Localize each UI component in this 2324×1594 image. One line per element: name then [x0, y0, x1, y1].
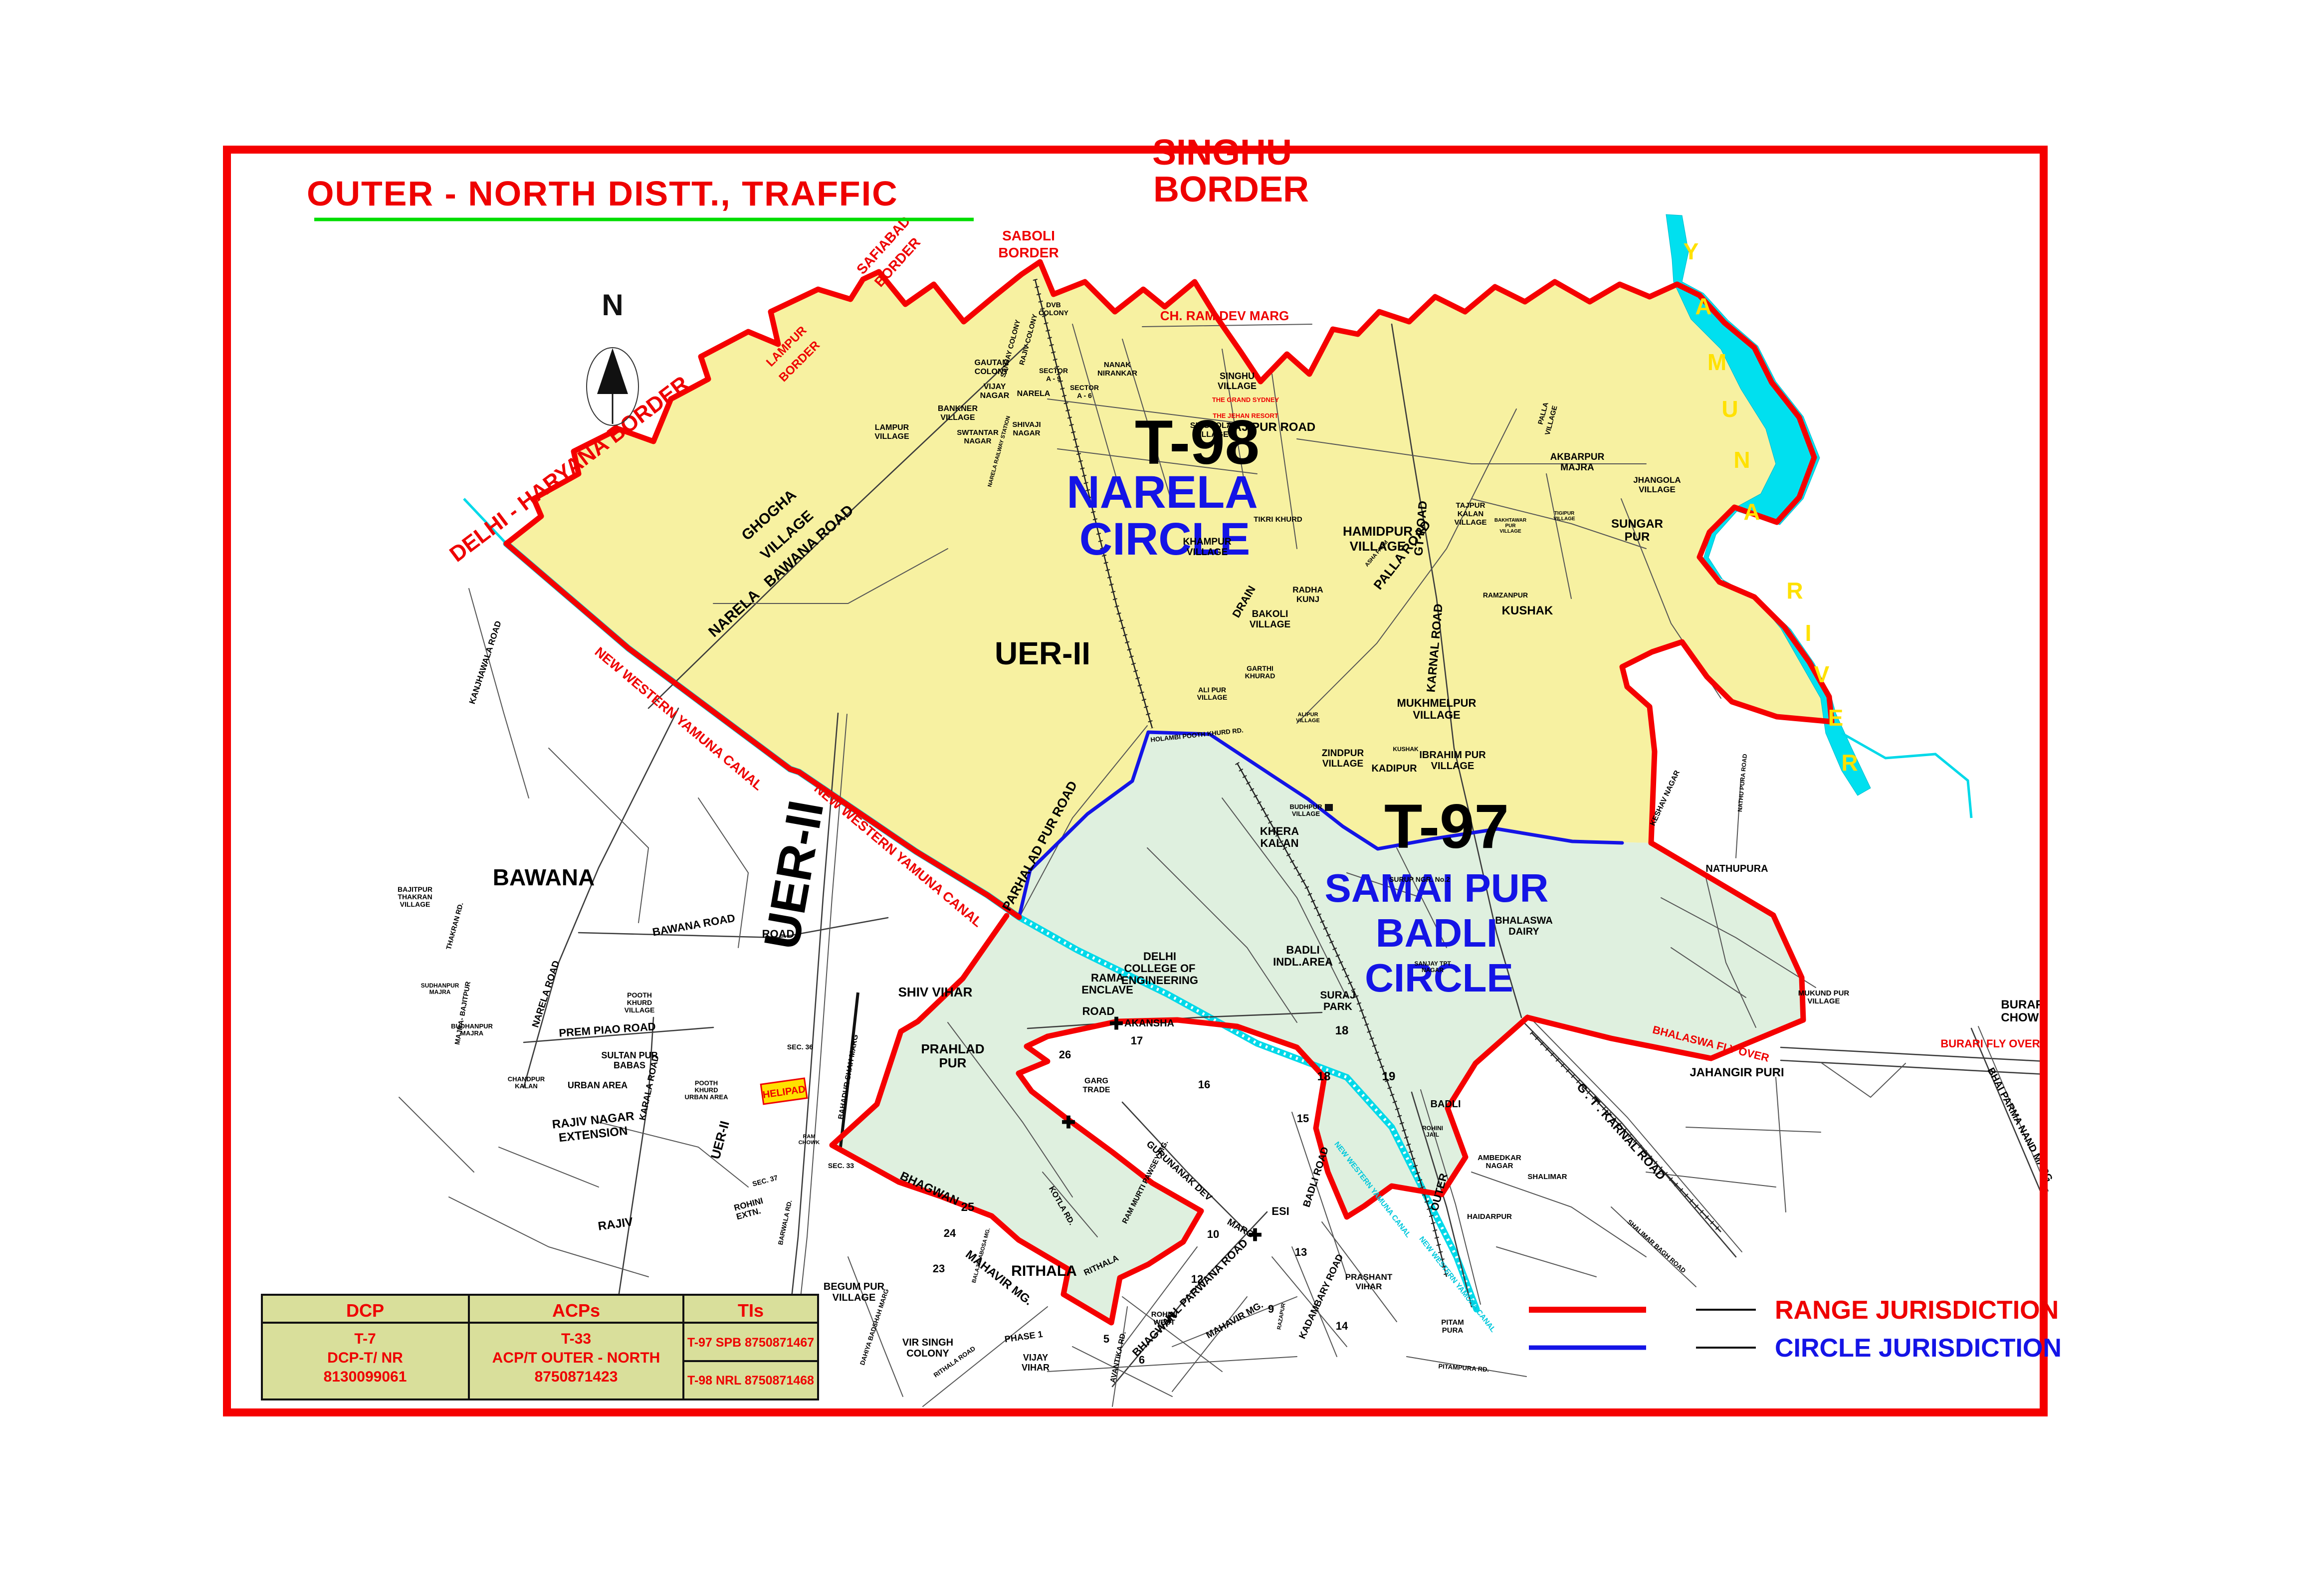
- map-label: MAJRA: [460, 1029, 484, 1037]
- map-label: VIJAY: [1023, 1353, 1048, 1363]
- district-traffic-map: HELIPAD SINGHUBORDERSAFIABADBORDERSABOLI…: [0, 0, 2324, 1594]
- map-label: Y: [1684, 238, 1699, 264]
- map-label: VIJAY: [984, 383, 1006, 391]
- map-label: DELHI: [1143, 950, 1176, 963]
- map-label: 18: [1317, 1070, 1331, 1083]
- map-label: BABAS: [614, 1060, 645, 1070]
- map-label: I: [1805, 620, 1812, 646]
- map-label: KUSHAK: [1393, 746, 1419, 753]
- map-label: TIKRI KHURD: [1254, 515, 1302, 524]
- map-label: POOTH: [627, 991, 652, 999]
- map-label: HAIDARPUR: [1467, 1212, 1512, 1221]
- map-label: 16: [1198, 1078, 1210, 1091]
- map-label: AMBEDKAR: [1478, 1154, 1521, 1162]
- map-label: RAMA: [1091, 972, 1124, 984]
- map-label: PITAM: [1441, 1318, 1464, 1327]
- table-acps-line1: T-33: [561, 1331, 591, 1347]
- map-label: RAMZANPUR: [1483, 591, 1528, 599]
- map-label: SHIVAJI: [1012, 420, 1041, 429]
- map-label: VILLAGE: [1553, 516, 1575, 522]
- map-label: A: [1743, 499, 1760, 525]
- map-label: NAGAR: [964, 437, 992, 445]
- map-label: ESI: [1271, 1205, 1289, 1217]
- map-label: A - 6: [1077, 392, 1092, 399]
- map-label: NANAK: [1104, 361, 1131, 369]
- map-label: 12: [1191, 1273, 1203, 1285]
- map-label: SWTANTAR: [957, 428, 999, 437]
- map-label: R: [1786, 578, 1803, 603]
- legend-circle-label: CIRCLE JURISDICTION: [1775, 1334, 2062, 1363]
- map-label: NIRANKAR: [1097, 369, 1137, 378]
- map-label: KHURAD: [1245, 672, 1275, 680]
- map-label: VILLAGE: [400, 900, 430, 908]
- map-label: SURUP NGR. No.2: [1389, 875, 1450, 883]
- map-label: COLONY: [1039, 309, 1069, 317]
- map-label: BAWANA: [493, 864, 595, 890]
- map-label: BAKHTAWAR: [1494, 518, 1527, 523]
- legend-range-label: RANGE JURISDICTION: [1775, 1296, 2059, 1325]
- map-label: BORDER: [1153, 170, 1309, 209]
- map-label: UER-II: [995, 635, 1090, 671]
- map-label: SURAJ: [1320, 990, 1355, 1001]
- map-label: VILLAGE: [1322, 759, 1363, 769]
- map-label: T-97: [1384, 792, 1509, 861]
- map-label: SABOLI: [1002, 228, 1055, 243]
- map-label: BUDHPUR: [1290, 803, 1323, 810]
- map-label: BEGUM PUR: [824, 1281, 885, 1292]
- map-label: BORDER: [998, 245, 1058, 260]
- map-label: M: [1707, 349, 1726, 375]
- map-label: 24: [944, 1227, 956, 1239]
- map-label: SULTAN PUR: [601, 1050, 657, 1060]
- map-label: DVB: [1046, 301, 1061, 309]
- table-dcp-line2: DCP-T/ NR: [327, 1350, 403, 1366]
- map-label: PRAHLAD: [921, 1041, 984, 1056]
- map-label: BADLI: [1286, 944, 1319, 956]
- map-label: THAKRAN: [398, 893, 432, 901]
- map-label: 5: [1103, 1333, 1109, 1345]
- map-label: RITHALA: [1011, 1263, 1077, 1279]
- table-header-tis: TIs: [738, 1300, 764, 1321]
- table-acps-line2: ACP/T OUTER - NORTH: [492, 1350, 660, 1366]
- map-label: TAJ PUR ROAD: [1227, 420, 1315, 434]
- map-label: RADHA: [1292, 585, 1323, 595]
- map-label: R: [1841, 750, 1858, 776]
- map-label: ALI PUR: [1198, 686, 1226, 694]
- table-dcp-line1: T-7: [354, 1331, 376, 1347]
- map-label: 13: [1295, 1246, 1307, 1258]
- map-label: N: [1733, 447, 1750, 473]
- map-label: POOTH: [695, 1079, 718, 1087]
- map-label: URBAN AREA: [685, 1093, 729, 1101]
- map-label: KUNJ: [1296, 595, 1319, 604]
- map-label: NAGAR: [980, 392, 1010, 400]
- map-label: SEC. 33: [828, 1162, 854, 1170]
- map-label: A: [1695, 293, 1711, 319]
- map-label: KALAN: [515, 1082, 538, 1090]
- map-label: BADLI: [1430, 1099, 1461, 1110]
- map-page: HELIPAD SINGHUBORDERSAFIABADBORDERSABOLI…: [0, 0, 2324, 1594]
- map-label: SUDHANPUR: [421, 982, 459, 989]
- map-label: CH. RAM DEV MARG: [1160, 308, 1289, 323]
- map-label: COLONY: [906, 1348, 949, 1359]
- map-label: BADLI: [1376, 911, 1497, 955]
- map-label: VILLAGE: [1413, 709, 1460, 721]
- hospital-cross-icon: ✚: [1248, 1226, 1263, 1245]
- map-label: INDL.AREA: [1273, 956, 1333, 968]
- map-label: BANKNER: [938, 404, 978, 413]
- budhpur-marker: [1325, 804, 1333, 811]
- map-label: 25: [961, 1200, 975, 1214]
- compass-north-label: N: [602, 288, 623, 322]
- map-label: CHANDPUR: [508, 1075, 545, 1083]
- map-label: NAGAR: [1486, 1162, 1513, 1170]
- map-label: KALAN: [1261, 837, 1299, 849]
- map-label: ROAD: [762, 928, 795, 940]
- map-label: VILLAGE: [625, 1006, 655, 1014]
- map-label: NAGAR: [1422, 967, 1444, 974]
- map-label: HAMIDPUR: [1343, 524, 1413, 539]
- map-label: VILLAGE: [1431, 761, 1475, 772]
- map-label: VIHAR: [1356, 1282, 1382, 1291]
- map-label: BUDHANPUR: [451, 1022, 493, 1030]
- map-label: CHOWK: [799, 1140, 820, 1146]
- map-label: IBRAHIM PUR: [1419, 750, 1486, 761]
- map-label: SANJAY TPT: [1414, 960, 1451, 967]
- map-label: JHANGOLA: [1633, 475, 1681, 485]
- map-label: E: [1828, 705, 1844, 731]
- map-label: KUSHAK: [1502, 604, 1553, 617]
- map-label: TAJPUR: [1456, 501, 1485, 510]
- map-label: A - 9: [1046, 375, 1061, 383]
- map-label: SECTOR: [1070, 384, 1099, 392]
- map-label: KADIPUR: [1371, 763, 1417, 774]
- map-label: VILLAGE: [1197, 693, 1228, 701]
- map-label: BAKOLI: [1252, 609, 1288, 619]
- map-label: VILLAGE: [874, 432, 909, 441]
- map-label: LAMPUR: [875, 423, 909, 432]
- map-label: VILLAGE: [1807, 997, 1840, 1005]
- map-label: KALAN: [1458, 510, 1484, 518]
- map-label: VILLAGE: [1499, 529, 1521, 534]
- map-label: SHALIMAR: [1527, 1173, 1567, 1181]
- map-label: PARK: [1323, 1001, 1352, 1012]
- map-label: TIGIPUR: [1554, 511, 1575, 516]
- map-label: ROHINI: [1422, 1125, 1443, 1132]
- map-label: DAIRY: [1508, 926, 1539, 937]
- map-label: KHERA: [1260, 825, 1299, 837]
- map-label: GARG: [1084, 1077, 1108, 1085]
- map-label: PUR: [1505, 523, 1516, 529]
- map-label: SHIV VIHAR: [898, 985, 973, 999]
- map-label: VILLAGE: [1250, 619, 1290, 630]
- map-label: 18: [1335, 1024, 1349, 1037]
- map-label: BAJITPUR: [398, 885, 432, 893]
- map-label: VILLAGE: [1292, 810, 1320, 817]
- map-label: ENCLAVE: [1081, 984, 1133, 996]
- contacts-table: DCP ACPs TIs T-7 DCP-T/ NR 8130099061 T-…: [262, 1295, 818, 1399]
- map-label: KHURD: [627, 998, 652, 1006]
- map-label: 15: [1297, 1112, 1309, 1125]
- map-label: SAMAI PUR: [1325, 866, 1549, 910]
- map-label: ALIPUR: [1298, 712, 1318, 718]
- map-label: 9: [1268, 1303, 1274, 1315]
- map-label: SINGHU: [1220, 371, 1255, 381]
- map-label: VILLAGE: [833, 1292, 876, 1303]
- map-label: 10: [1207, 1228, 1219, 1240]
- page-title: OUTER - NORTH DISTT., TRAFFIC: [307, 174, 898, 213]
- map-label: URBAN AREA: [568, 1080, 628, 1090]
- map-label: VIHAR: [1022, 1363, 1050, 1373]
- map-label: JAIL: [1426, 1131, 1439, 1138]
- map-label: SUNGAR: [1611, 517, 1663, 531]
- map-label: MAJRA: [1560, 462, 1594, 473]
- table-ti-t97: T-97 SPB 8750871467: [687, 1336, 814, 1350]
- hospital-cross-icon: ✚: [1109, 1014, 1124, 1033]
- map-label: PUR: [1625, 530, 1650, 544]
- map-label: NARELA: [1017, 390, 1051, 398]
- map-label: BURARI FLY OVER: [1940, 1037, 2040, 1050]
- map-label: TRADE: [1082, 1086, 1110, 1094]
- map-label: VILLAGE: [1296, 718, 1320, 724]
- map-label: KHURD: [695, 1086, 718, 1094]
- map-label: 17: [1131, 1034, 1143, 1047]
- map-label: BHALASWA: [1495, 915, 1553, 926]
- map-label: KHAMPUR: [1183, 537, 1231, 547]
- table-ti-t98: T-98 NRL 8750871468: [687, 1374, 814, 1388]
- map-label: NATHUPURA: [1705, 863, 1768, 874]
- map-label: 19: [1382, 1070, 1396, 1083]
- map-label: VILLAGE: [1454, 518, 1486, 527]
- map-label: V: [1814, 661, 1830, 687]
- table-header-dcp: DCP: [346, 1300, 384, 1321]
- map-label: RAM: [803, 1134, 815, 1140]
- map-label: ZINDPUR: [1322, 748, 1364, 759]
- map-label: GARTHI: [1247, 664, 1273, 672]
- map-label: PRASHANT: [1345, 1272, 1393, 1282]
- map-label: PURA: [1442, 1326, 1464, 1335]
- map-label: VILLAGE: [1639, 485, 1676, 494]
- map-label: SECTOR: [1039, 367, 1068, 375]
- map-label: MUKUND PUR: [1798, 989, 1850, 997]
- map-label: MUKHMELPUR: [1397, 697, 1477, 709]
- map-label: U: [1721, 396, 1738, 422]
- map-label: VILLAGE: [1187, 547, 1228, 558]
- map-label: AKBARPUR: [1550, 452, 1605, 462]
- map-label: 26: [1059, 1048, 1071, 1061]
- table-header-acps: ACPs: [552, 1300, 600, 1321]
- map-label: THE GRAND SYDNEY: [1212, 396, 1279, 403]
- map-label: VILLAGE: [1194, 430, 1229, 439]
- map-label: VIR SINGH: [902, 1337, 953, 1348]
- map-label: SEC. 36: [787, 1043, 813, 1051]
- map-label: 23: [933, 1262, 945, 1275]
- map-label: COLLEGE OF: [1124, 962, 1196, 975]
- map-label: 14: [1336, 1320, 1348, 1332]
- map-label: PUR: [939, 1055, 967, 1070]
- map-label: VILLAGE: [1218, 381, 1257, 391]
- hospital-cross-icon: ✚: [1061, 1113, 1076, 1132]
- map-label: JAHANGIR PURI: [1690, 1066, 1784, 1079]
- map-label: VILLAGE: [940, 413, 975, 422]
- map-label: NAGAR: [1013, 429, 1041, 437]
- table-acps-line3: 8750871423: [535, 1369, 618, 1385]
- map-label: AKANSHA: [1124, 1018, 1174, 1029]
- map-label: NARELA: [1066, 467, 1258, 518]
- map-label: MAJRA: [429, 989, 451, 996]
- table-dcp-line3: 8130099061: [324, 1369, 407, 1385]
